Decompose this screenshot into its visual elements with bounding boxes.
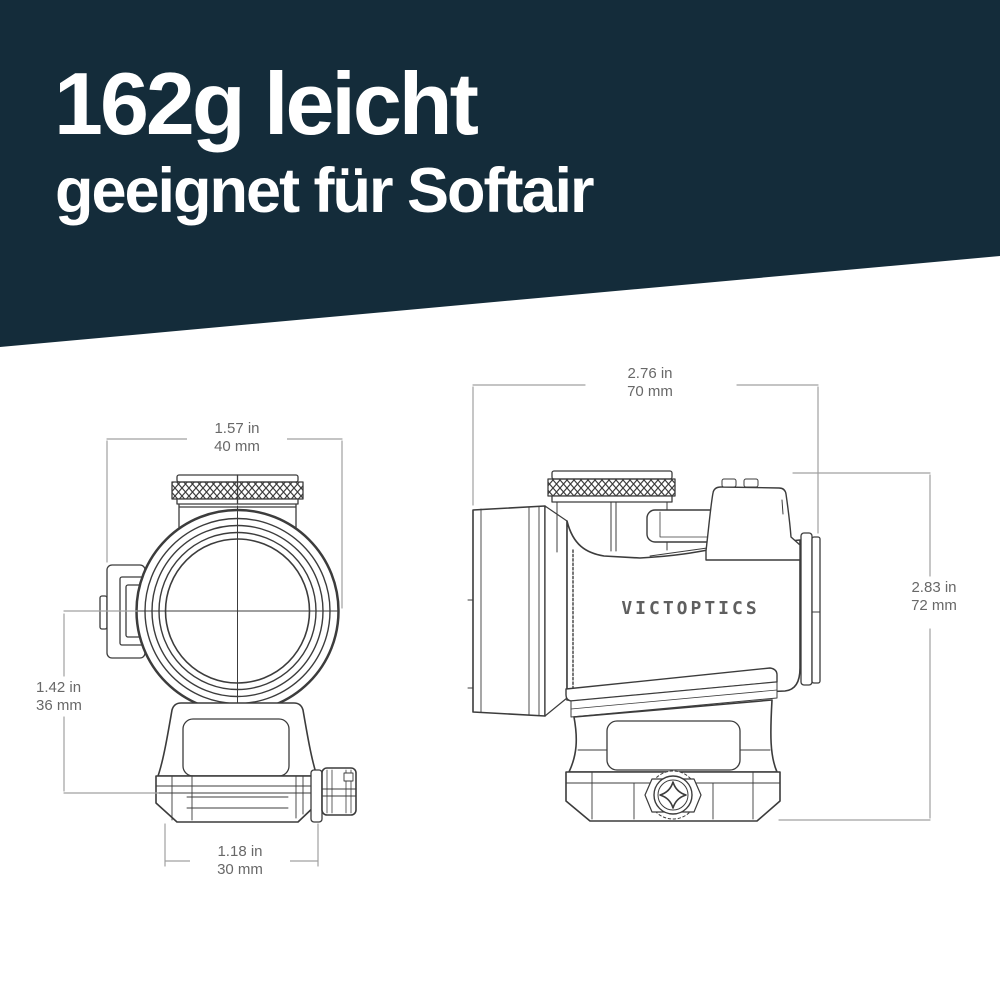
side-view (468, 471, 820, 821)
dim-mm: 72 mm (884, 597, 984, 615)
front-mount-base (156, 703, 318, 822)
dim-label-front-width: 1.57 in 40 mm (187, 420, 287, 456)
button-icon (722, 479, 736, 487)
dim-label-mount-width: 1.18 in 30 mm (190, 843, 290, 879)
side-eyepiece (801, 533, 820, 685)
dim-inches: 1.57 in (187, 420, 287, 438)
technical-drawing (0, 0, 1000, 1000)
dim-mm: 70 mm (600, 383, 700, 401)
side-rear-housing (706, 479, 800, 560)
dim-label-front-height: 1.42 in 36 mm (36, 679, 98, 715)
dim-label-side-length: 2.76 in 70 mm (600, 365, 700, 401)
dim-inches: 2.76 in (600, 365, 700, 383)
dim-label-side-height: 2.83 in 72 mm (884, 579, 984, 615)
front-view (100, 475, 356, 822)
dim-mm: 40 mm (187, 438, 287, 456)
dim-inches: 1.18 in (190, 843, 290, 861)
dim-inches: 1.42 in (36, 679, 98, 697)
front-clamp-knob (311, 768, 356, 822)
dim-inches: 2.83 in (884, 579, 984, 597)
brand-label: VICTOPTICS (608, 598, 773, 619)
dim-mm: 30 mm (190, 861, 290, 879)
side-objective-hood (468, 506, 567, 716)
dim-mm: 36 mm (36, 697, 98, 715)
button-icon (744, 479, 758, 487)
front-turret-cap (172, 475, 303, 504)
